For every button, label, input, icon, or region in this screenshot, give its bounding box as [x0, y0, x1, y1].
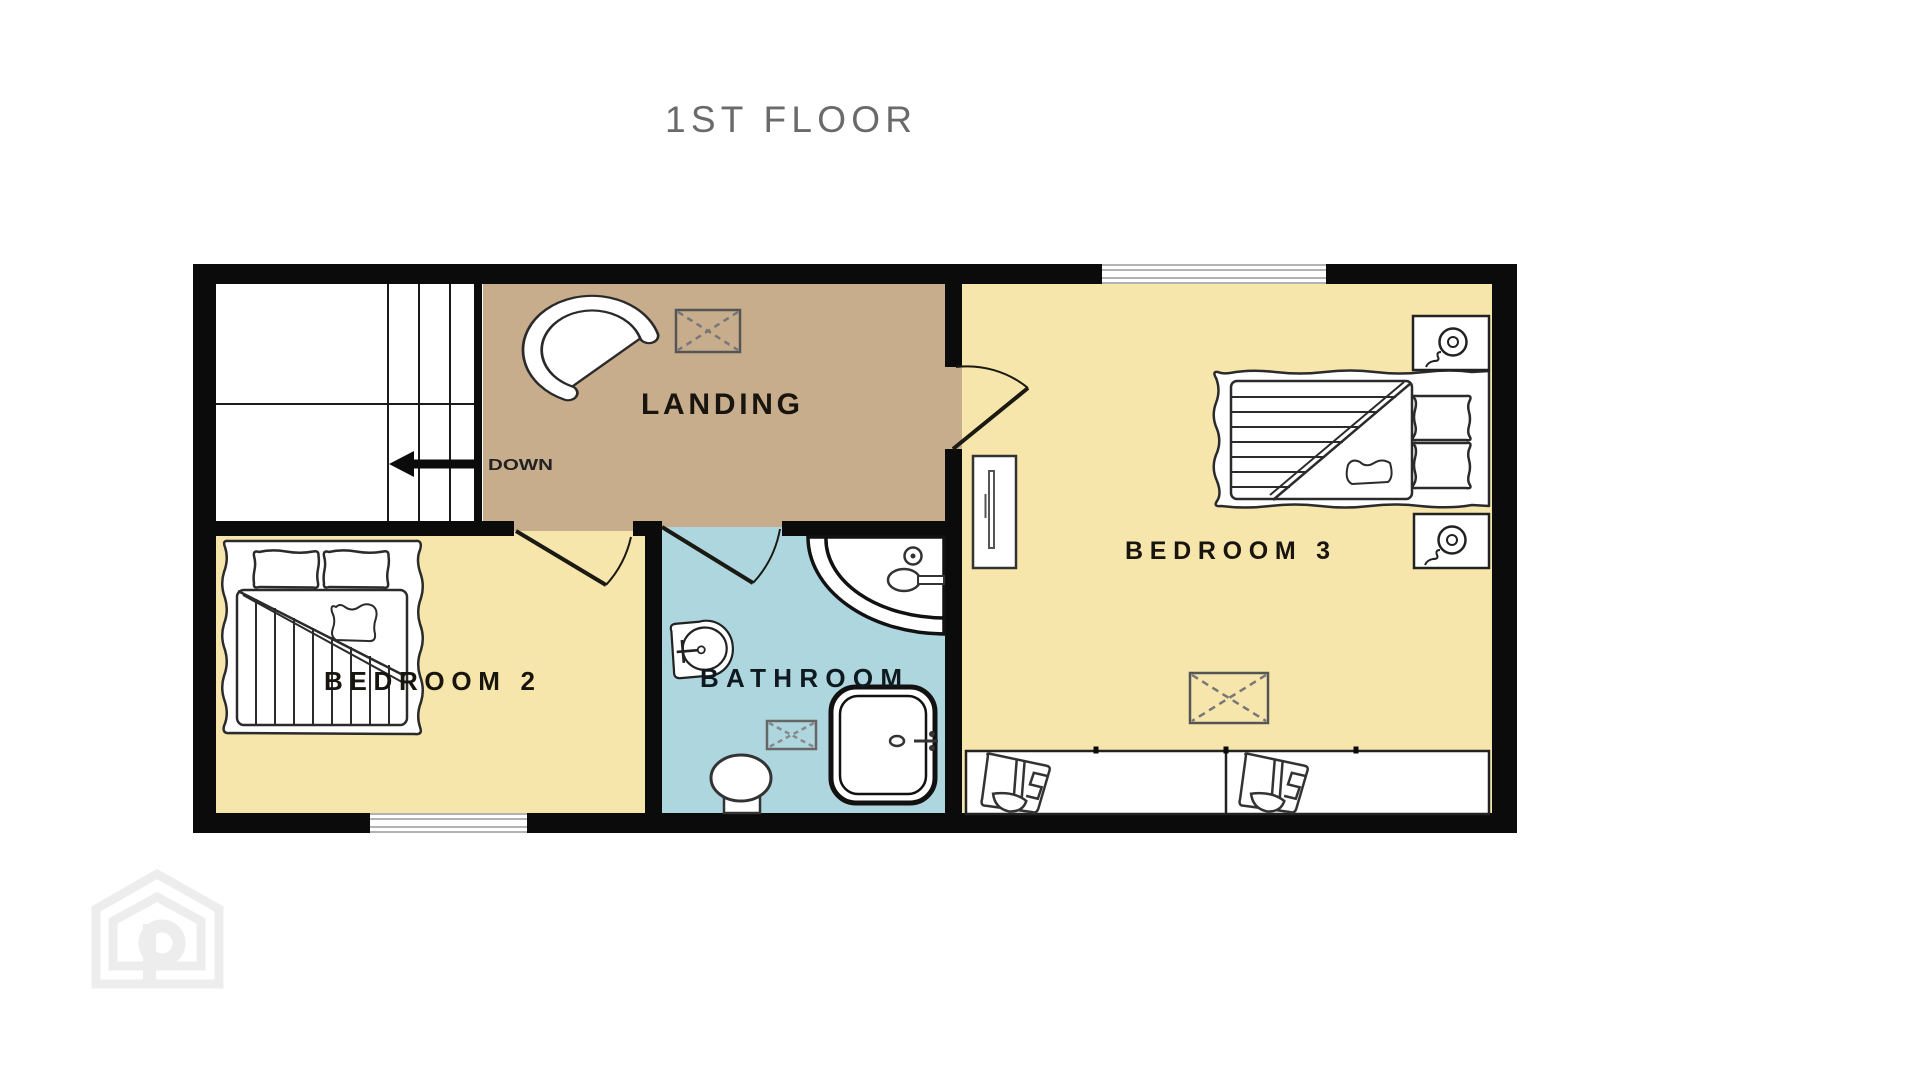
- svg-text:BATHROOM: BATHROOM: [700, 663, 902, 693]
- svg-text:DOWN: DOWN: [488, 457, 553, 474]
- svg-text:LANDING: LANDING: [641, 388, 800, 421]
